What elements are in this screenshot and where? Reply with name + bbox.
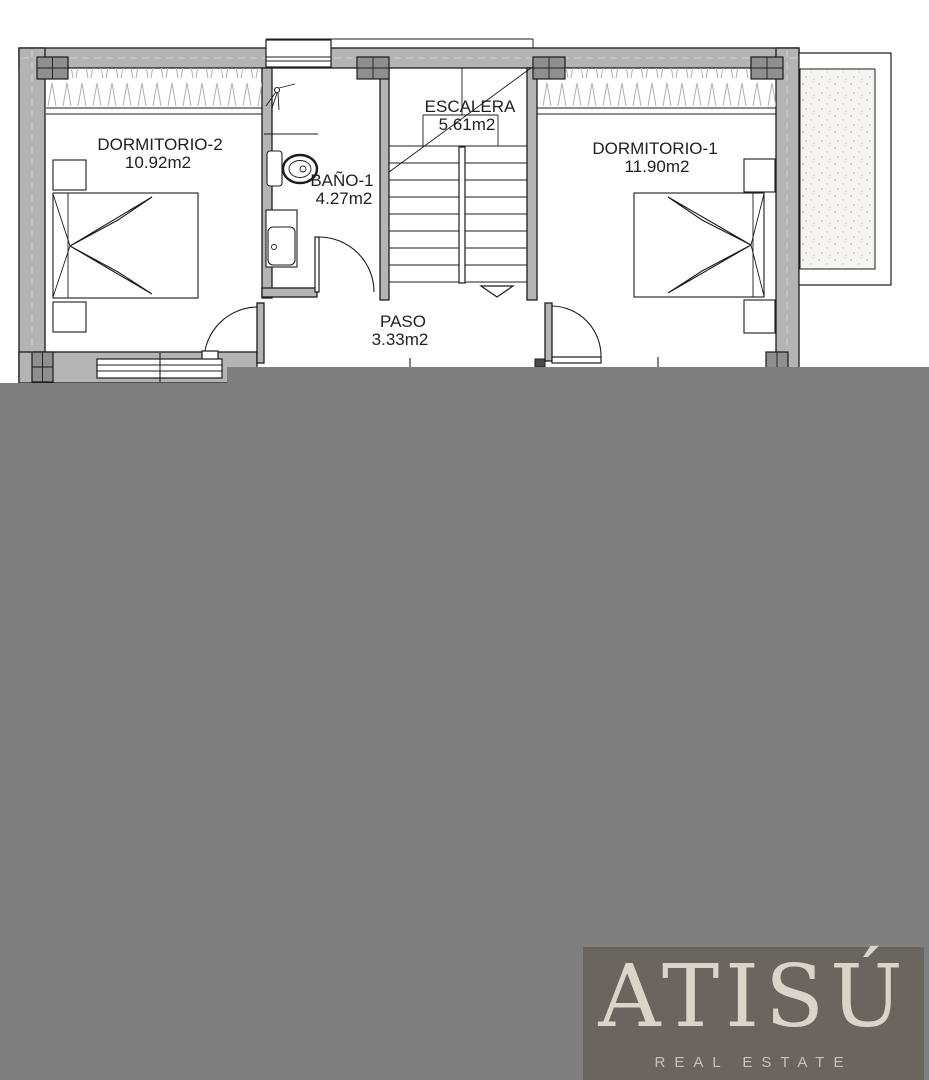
room-area-dormitorio-2: 10.92m2 bbox=[125, 153, 191, 172]
watermark-logo: ATISÚ REAL ESTATE bbox=[583, 947, 924, 1080]
pillar-bottom-right bbox=[766, 352, 788, 368]
room-label-bano-1: BAÑO-1 bbox=[310, 171, 373, 190]
room-label-dormitorio-1: DORMITORIO-1 bbox=[592, 139, 717, 158]
sink-icon bbox=[266, 210, 297, 267]
room-area-bano-1: 4.27m2 bbox=[316, 189, 373, 208]
stair-down-arrow-icon bbox=[481, 286, 513, 297]
pillar-bottom-left bbox=[32, 352, 53, 382]
bed-dormitorio-2 bbox=[53, 193, 198, 298]
dormitorio-1-door bbox=[535, 303, 601, 367]
pillar-top-left bbox=[37, 57, 68, 79]
nightstand-icon bbox=[744, 159, 775, 192]
room-area-paso: 3.33m2 bbox=[372, 330, 429, 349]
brand-tagline: REAL ESTATE bbox=[583, 1054, 924, 1071]
room-label-paso: PASO bbox=[380, 312, 426, 331]
bathroom-door bbox=[315, 237, 374, 292]
room-label-dormitorio-2: DORMITORIO-2 bbox=[97, 135, 222, 154]
stair-center-rail bbox=[459, 147, 465, 283]
floor-plan: DORMITORIO-2 10.92m2 BAÑO-1 4.27m2 ESCAL… bbox=[0, 0, 929, 400]
pillar-bath-stair bbox=[357, 57, 389, 79]
wardrobe-dormitorio-1 bbox=[537, 68, 776, 114]
wardrobe-dormitorio-2 bbox=[46, 68, 262, 114]
nightstand-icon bbox=[53, 302, 86, 332]
nightstand-icon bbox=[744, 300, 775, 333]
brand-name: ATISÚ bbox=[583, 947, 924, 1040]
terrace bbox=[799, 53, 891, 285]
screenshot-root: DORMITORIO-2 10.92m2 BAÑO-1 4.27m2 ESCAL… bbox=[0, 0, 929, 1080]
room-area-dormitorio-1: 11.90m2 bbox=[625, 157, 690, 176]
bed-dormitorio-1 bbox=[634, 193, 764, 297]
nightstand-icon bbox=[53, 160, 86, 190]
room-area-escalera: 5.61m2 bbox=[439, 115, 496, 134]
gray-placeholder-region bbox=[0, 383, 229, 1080]
room-label-escalera: ESCALERA bbox=[425, 97, 516, 116]
pillar-stair-right bbox=[533, 57, 565, 79]
pillar-top-right bbox=[751, 57, 783, 79]
